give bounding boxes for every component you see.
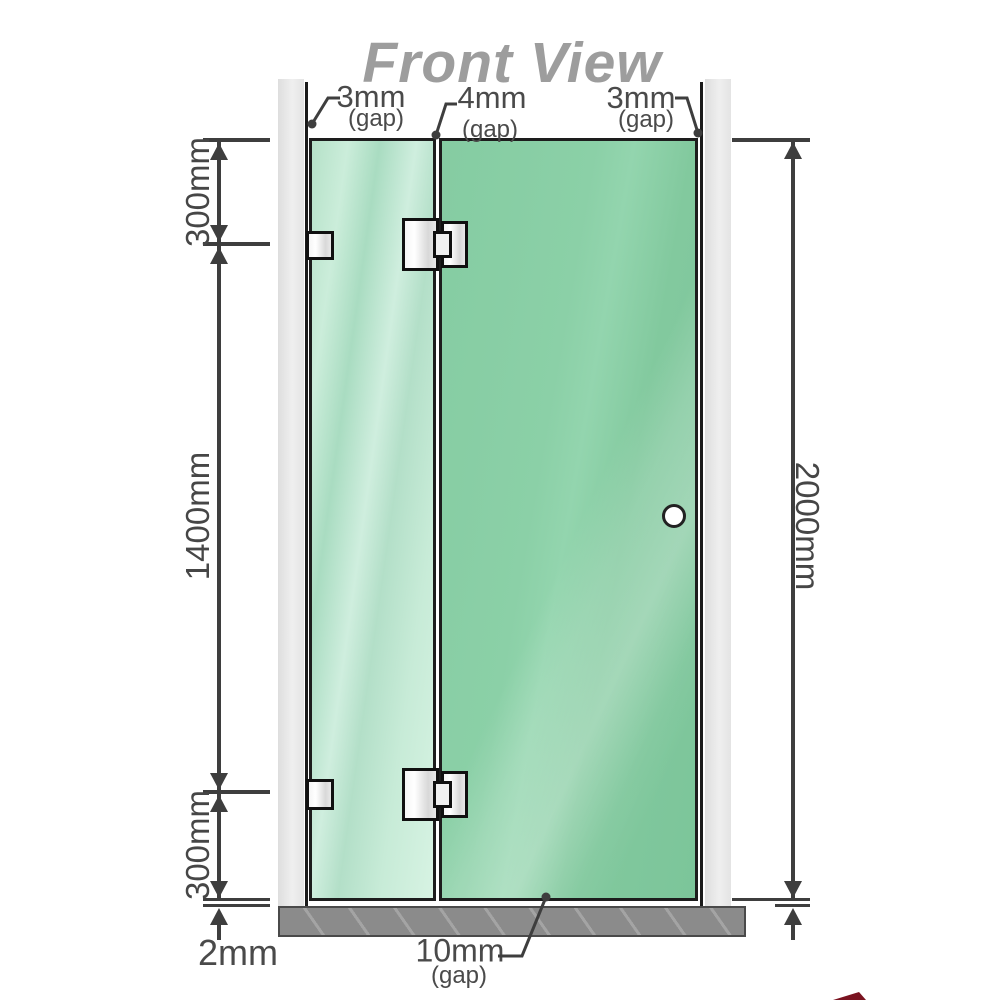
leader-dot-top-left	[308, 120, 317, 129]
leader-top-right	[675, 98, 698, 133]
leader-dot-top-right	[694, 129, 703, 138]
front-view-diagram: Front View 300mm 1400mm 300mm 2mm	[0, 0, 1000, 1000]
leader-dot-top-center	[432, 131, 441, 140]
leader-top-center	[436, 104, 457, 135]
leader-dot-bottom-gap	[542, 893, 551, 902]
leader-lines	[0, 0, 1000, 1000]
corner-red-mark	[833, 992, 866, 1000]
leader-bottom-gap	[498, 897, 546, 956]
leader-top-left	[312, 98, 340, 124]
